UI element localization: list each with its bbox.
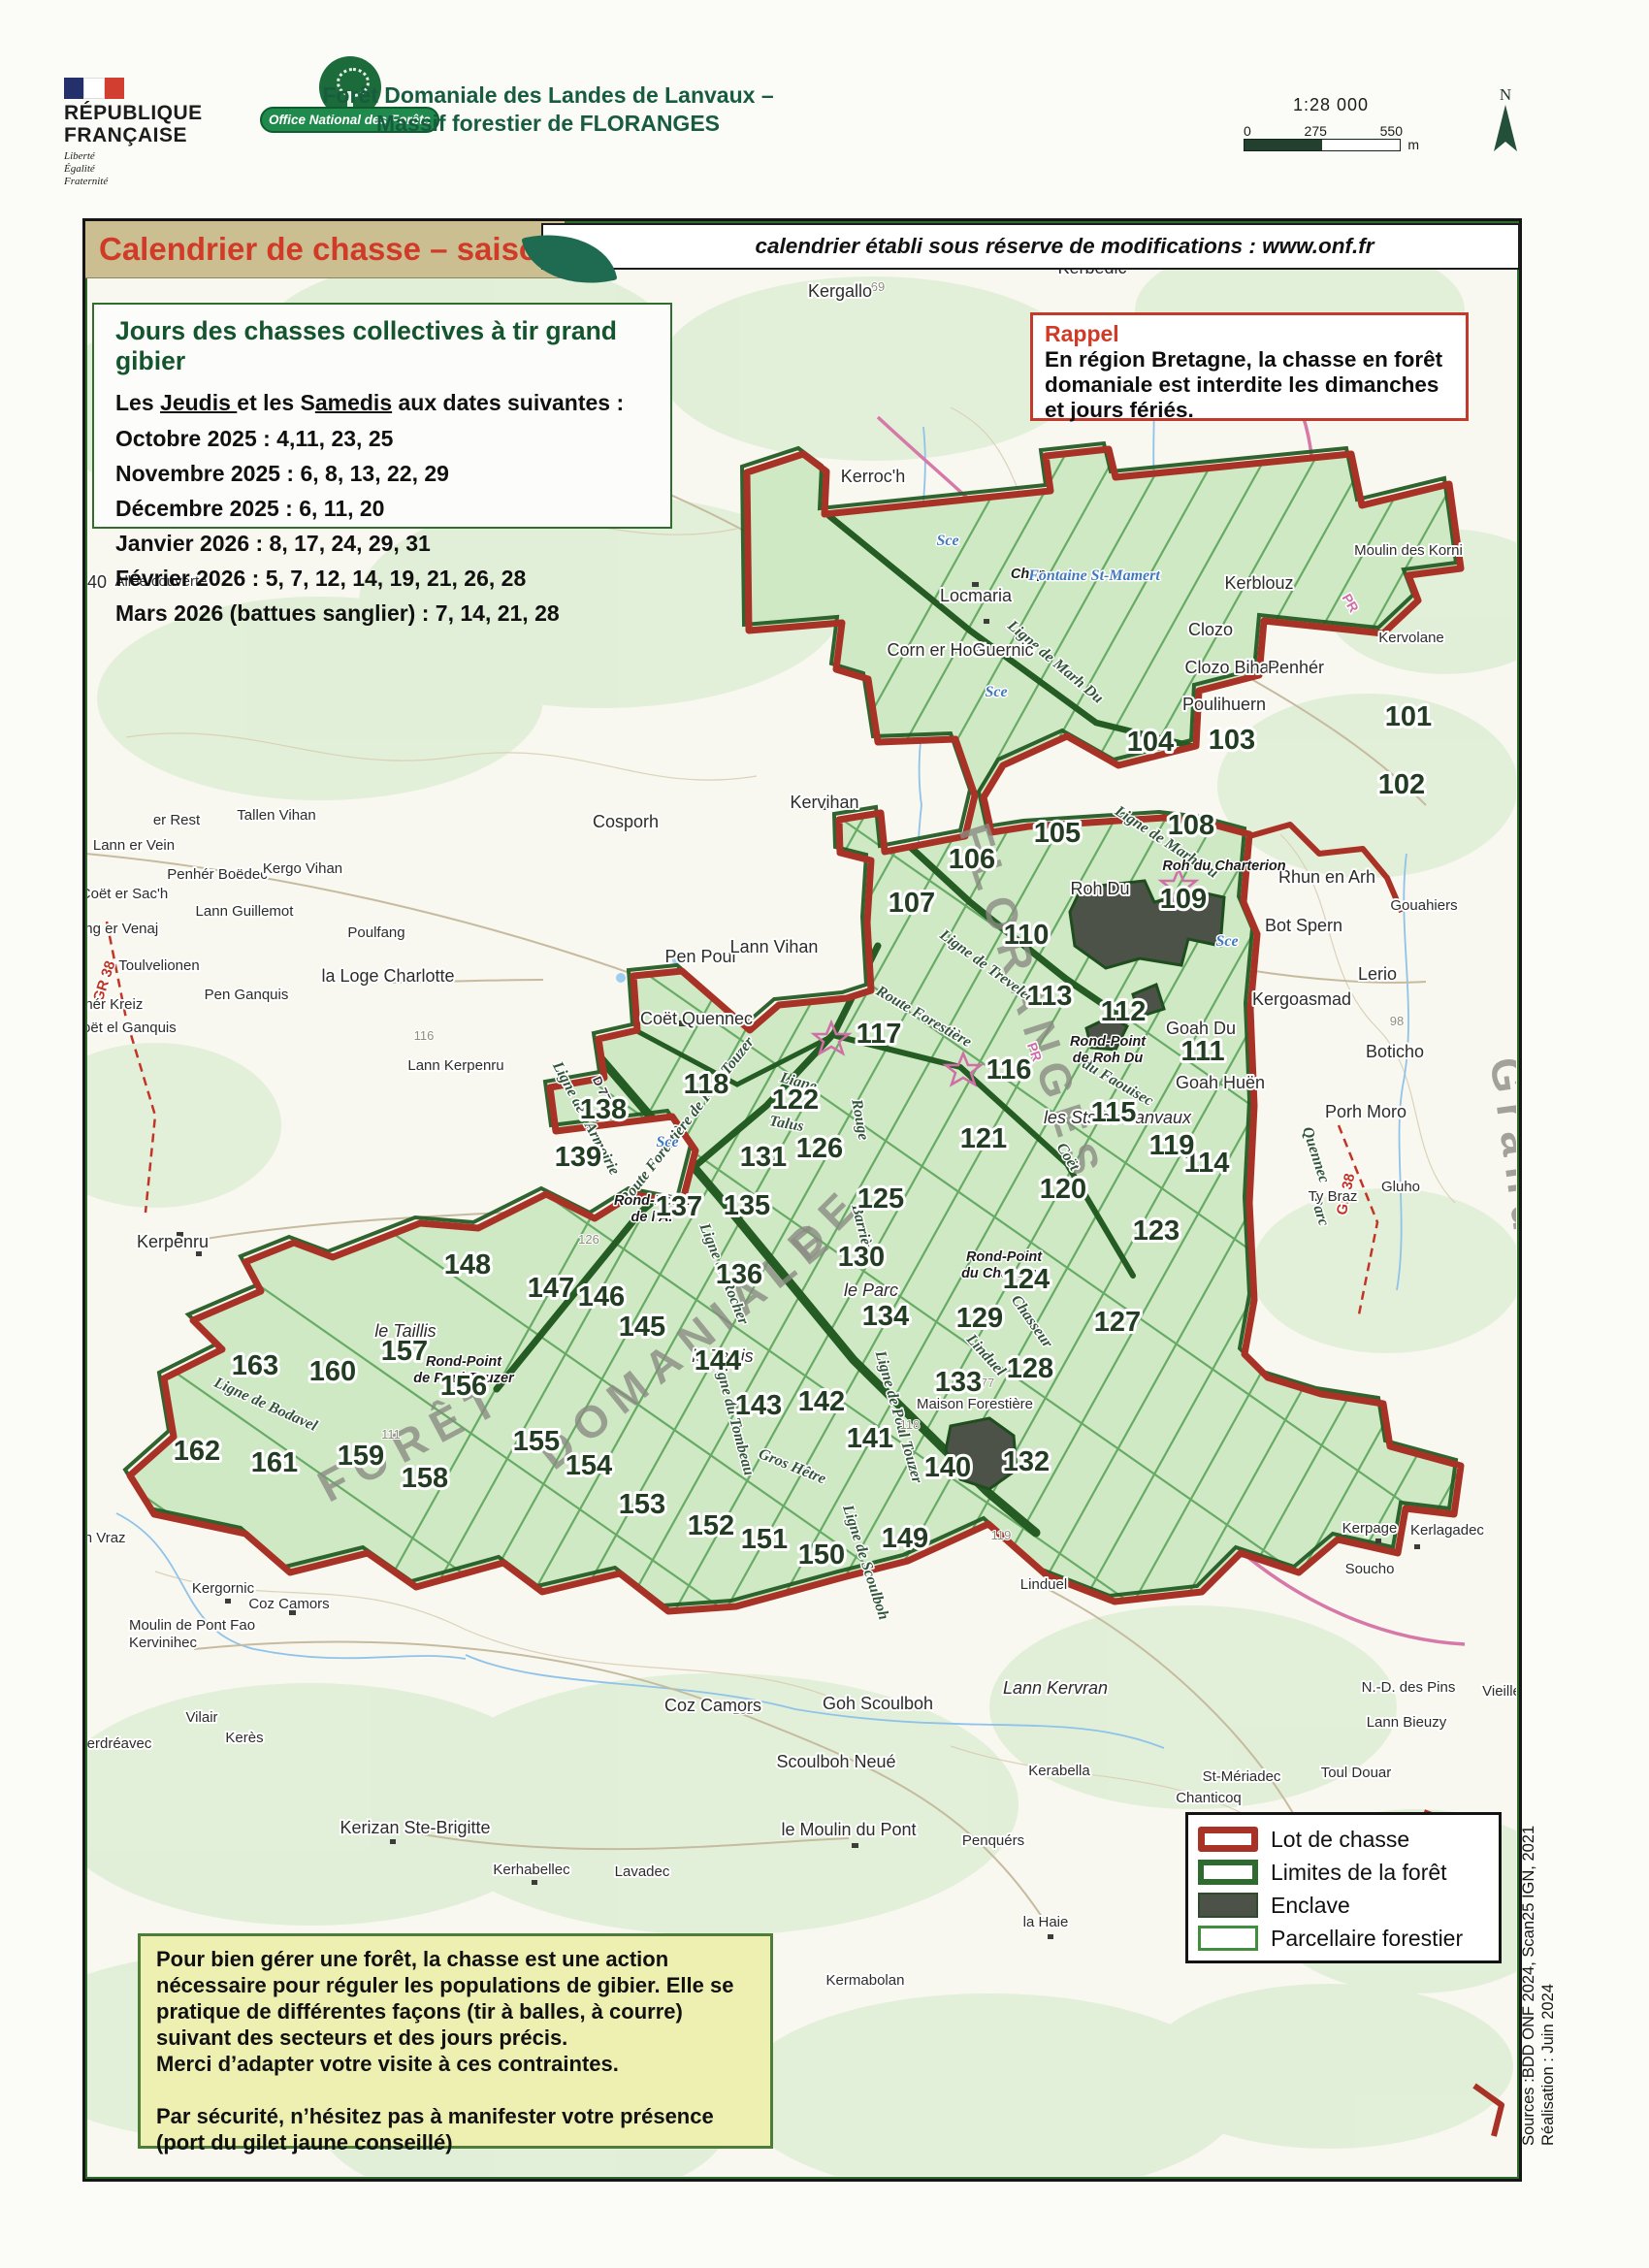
parcel-label-126: 126	[796, 1133, 843, 1164]
parcel-label-144: 144	[695, 1345, 741, 1377]
rappel-title: Rappel	[1045, 321, 1454, 347]
place-label: Kerizan Ste-Brigitte	[339, 1818, 490, 1837]
parcel-label-150: 150	[798, 1539, 845, 1571]
parcel-label-110: 110	[1004, 920, 1050, 951]
schedule-line-5: Mars 2026 (battues sanglier) : 7, 14, 21…	[115, 600, 670, 627]
place-label: le Moulin du Pont	[781, 1820, 916, 1839]
elevation-label: 118	[900, 1417, 921, 1432]
parcel-label-116: 116	[986, 1054, 1032, 1085]
place-label: Clozo	[1188, 620, 1233, 639]
parcel-label-162: 162	[174, 1436, 220, 1467]
place-label: Penhér Boëdec	[167, 866, 268, 883]
place-label: N.-D. des Pins	[1362, 1679, 1456, 1696]
parcel-label-148: 148	[444, 1249, 491, 1280]
parcel-label-133: 133	[935, 1367, 982, 1398]
place-label: Coët Quennec	[640, 1009, 753, 1028]
place-label: Kergornic	[192, 1580, 255, 1597]
place-label: Sce	[656, 1134, 678, 1150]
legend-label: Lot de chasse	[1271, 1827, 1409, 1853]
scale-bar: m	[1244, 139, 1401, 151]
place-label: de Roh Du	[1073, 1051, 1144, 1066]
parcel-label-103: 103	[1209, 725, 1255, 756]
parcel-label-135: 135	[724, 1190, 770, 1221]
legend-label: Enclave	[1271, 1893, 1350, 1919]
place-label: Kerblouz	[1224, 573, 1293, 593]
place-label: Rhun en Arh	[1278, 867, 1375, 887]
republique-francaise-logo: RÉPUBLIQUE FRANÇAISE Liberté Égalité Fra…	[64, 78, 248, 188]
place-label: Kerhabellec	[493, 1862, 570, 1878]
place-label: Penhér	[1268, 658, 1324, 677]
place-label: Bot Spern	[1265, 916, 1342, 935]
french-flag-icon	[64, 78, 124, 99]
place-label: Kermabolan	[826, 1972, 905, 1989]
parcel-label-125: 125	[857, 1183, 904, 1215]
legend-swatch-enclave	[1198, 1893, 1258, 1918]
place-label: Clozo Bihan	[1184, 658, 1278, 677]
legend-label: Limites de la forêt	[1271, 1860, 1447, 1886]
parcel-label-160: 160	[309, 1356, 356, 1387]
sources-line1: Sources :BDD ONF 2024, Scan25 IGN, 2021	[1519, 1738, 1538, 2146]
place-label: Kerpage	[1342, 1520, 1398, 1537]
legend-item-limits: Limites de la forêt	[1198, 1856, 1489, 1889]
legend-swatch-lot	[1198, 1827, 1258, 1852]
hunting-schedule-box: Jours des chasses collectives à tir gran…	[92, 303, 672, 529]
rf-name-line2: FRANÇAISE	[64, 124, 187, 146]
parcel-label-151: 151	[741, 1524, 788, 1555]
sources-note: Sources :BDD ONF 2024, Scan25 IGN, 2021 …	[1519, 1738, 1558, 2146]
rf-motto2: Égalité	[64, 163, 95, 175]
parcel-label-124: 124	[1003, 1264, 1050, 1295]
place-label: Kerdréavec	[85, 1735, 152, 1752]
parcel-label-156: 156	[440, 1371, 487, 1402]
elevation-label: 98	[1390, 1014, 1404, 1028]
place-label: eh Vraz	[85, 1530, 126, 1546]
rf-motto3: Fraternité	[64, 176, 108, 187]
parcel-label-105: 105	[1034, 818, 1081, 849]
elevation-label: 77	[981, 1376, 994, 1390]
place-label: Moulin de Pont Fao	[129, 1617, 255, 1634]
parcel-label-130: 130	[838, 1242, 885, 1273]
place-label: Locmaria	[940, 586, 1013, 605]
note-strip: calendrier établi sous réserve de modifi…	[541, 223, 1520, 270]
place-label: Lavadec	[615, 1863, 670, 1880]
place-label: le Parc	[844, 1280, 898, 1300]
parcel-label-104: 104	[1127, 727, 1174, 758]
schedule-line-1: Novembre 2025 : 6, 8, 13, 22, 29	[115, 461, 670, 487]
north-label: N	[1488, 85, 1523, 105]
place-label: Gluho	[1381, 1179, 1420, 1195]
parcel-label-113: 113	[1027, 981, 1073, 1012]
place-label: Gouahiers	[1390, 897, 1457, 914]
place-label: Roh du Charterion	[1162, 859, 1285, 874]
place-label: Goah Huën	[1176, 1073, 1265, 1092]
parcel-label-155: 155	[513, 1426, 560, 1457]
place-label: Penquérs	[962, 1832, 1024, 1849]
place-label: Kerlagadec	[1410, 1522, 1484, 1539]
place-label: Toul Douar	[1321, 1765, 1392, 1781]
place-label: Coët el Ganquis	[85, 1020, 177, 1036]
place-label: Kervolane	[1378, 630, 1444, 646]
place-label: Rond-Point	[426, 1354, 502, 1370]
parcel-label-136: 136	[716, 1259, 762, 1290]
north-arrow-icon	[1491, 105, 1520, 155]
parcel-label-111: 111	[1180, 1036, 1224, 1067]
parcel-label-152: 152	[688, 1510, 734, 1541]
scale-tick-0: 0	[1244, 123, 1251, 139]
parcel-label-149: 149	[882, 1523, 928, 1554]
place-label: Kerroc'h	[841, 467, 905, 486]
place-label: Maison Forestière	[917, 1396, 1033, 1412]
parcel-label-141: 141	[847, 1423, 893, 1454]
schedule-line-0: Octobre 2025 : 4,11, 23, 25	[115, 426, 670, 452]
scale-ratio: 1:28 000	[1244, 95, 1418, 115]
parcel-label-112: 112	[1101, 996, 1147, 1027]
legend-item-lot: Lot de chasse	[1198, 1823, 1489, 1856]
schedule-line-4: Février 2026 : 5, 7, 12, 14, 19, 21, 26,…	[115, 566, 670, 592]
place-label: Cosporh	[593, 812, 659, 831]
parcel-label-129: 129	[956, 1303, 1003, 1334]
parcel-label-102: 102	[1378, 769, 1425, 800]
schedule-line-3: Janvier 2026 : 8, 17, 24, 29, 31	[115, 531, 670, 557]
place-label: Ty Braz	[1309, 1188, 1358, 1205]
rappel-box: Rappel En région Bretagne, la chasse en …	[1030, 312, 1469, 421]
place-label: Boticho	[1366, 1042, 1424, 1061]
schedule-line-2: Décembre 2025 : 6, 11, 20	[115, 496, 670, 522]
place-label: Porh Moro	[1325, 1102, 1406, 1121]
parcel-label-128: 128	[1007, 1353, 1053, 1384]
parcel-label-127: 127	[1094, 1307, 1141, 1338]
elevation-label: 116	[414, 1028, 435, 1043]
place-label: Kerès	[225, 1730, 263, 1746]
schedule-lines: Octobre 2025 : 4,11, 23, 25Novembre 2025…	[115, 426, 670, 627]
place-label: la Haie	[1023, 1914, 1069, 1930]
elevation-label: 111	[381, 1427, 401, 1442]
parcel-label-146: 146	[578, 1281, 625, 1312]
note-text: calendrier établi sous réserve de modifi…	[687, 234, 1374, 259]
parcel-label-159: 159	[338, 1441, 384, 1472]
parcel-label-139: 139	[555, 1142, 601, 1173]
parcel-label-143: 143	[735, 1390, 782, 1421]
info-para3: Par sécurité, n’hésitez pas à manifester…	[156, 2103, 755, 2155]
parcel-label-107: 107	[889, 888, 935, 919]
place-label: Sce	[985, 684, 1007, 700]
place-label: Lann er Vein	[93, 837, 175, 854]
place-label: Rond-Point	[966, 1249, 1043, 1265]
title-line2: Massif forestier de FLORANGES	[376, 111, 720, 136]
place-label: Kergallo	[808, 281, 872, 301]
place-label: Kervihan	[790, 793, 858, 812]
scale-tick-275: 275	[1305, 123, 1327, 139]
parcel-label-119: 119	[1149, 1130, 1195, 1161]
parcel-label-147: 147	[528, 1273, 574, 1304]
place-label: Kerpenru	[137, 1232, 209, 1251]
parcel-label-132: 132	[1003, 1446, 1050, 1477]
place-label: la Loge Charlotte	[321, 966, 454, 986]
schedule-title: Jours des chasses collectives à tir gran…	[115, 316, 670, 376]
place-label: Kerabella	[1028, 1763, 1090, 1779]
north-arrow: N	[1488, 85, 1523, 160]
parcel-label-122: 122	[772, 1085, 819, 1116]
parcel-label-163: 163	[232, 1350, 278, 1381]
legend-swatch-limits	[1198, 1860, 1258, 1885]
place-label: er Rest	[153, 812, 201, 828]
page-title: Forêt Domaniale des Landes de Lanvaux – …	[320, 81, 776, 138]
parcel-label-140: 140	[924, 1452, 971, 1483]
scale-tick-550: 550	[1380, 123, 1403, 139]
place-label: Pen Ganquis	[205, 987, 289, 1003]
elevation-label: 69	[871, 279, 885, 294]
parcel-label-161: 161	[251, 1447, 298, 1478]
parcel-label-115: 115	[1091, 1097, 1137, 1128]
place-label: Poulfang	[347, 924, 404, 941]
place-label: Kergo Vihan	[263, 860, 342, 877]
legend-item-enclave: Enclave	[1198, 1889, 1489, 1922]
parcel-label-134: 134	[862, 1301, 909, 1332]
parcel-label-154: 154	[566, 1450, 612, 1481]
legend-label: Parcellaire forestier	[1271, 1926, 1463, 1952]
sources-line2: Réalisation : Juin 2024	[1538, 1738, 1558, 2146]
legend-swatch-parcel	[1198, 1926, 1258, 1951]
legend-item-parcel: Parcellaire forestier	[1198, 1922, 1489, 1955]
place-label: Poulihuern	[1182, 695, 1266, 714]
parcel-label-142: 142	[798, 1386, 845, 1417]
place-label: Coët er Sac'h	[85, 886, 168, 902]
parcel-label-137: 137	[656, 1191, 702, 1222]
map-legend: Lot de chasseLimites de la forêtEnclaveP…	[1185, 1812, 1502, 1963]
parcel-label-101: 101	[1385, 701, 1432, 732]
elevation-label: 126	[578, 1232, 599, 1247]
parcel-label-121: 121	[960, 1123, 1007, 1154]
place-label: Chanticoq	[1176, 1790, 1242, 1806]
place-label: Scoulboh Neué	[776, 1752, 895, 1771]
place-label: Goh Scoulboh	[823, 1694, 933, 1713]
place-label: Penhér Kreiz	[85, 996, 143, 1013]
elevation-label: 119	[991, 1528, 1012, 1542]
info-box: Pour bien gérer une forêt, la chasse est…	[138, 1933, 773, 2149]
parcel-label-153: 153	[619, 1489, 665, 1520]
place-label: Lann Kervran	[1003, 1678, 1108, 1698]
schedule-subtitle: Les Jeudis et les Samedis aux dates suiv…	[115, 390, 670, 416]
place-label: Kervinihec	[129, 1635, 198, 1651]
rf-motto1: Liberté	[64, 150, 95, 162]
place-label: Coz Camors	[248, 1596, 329, 1612]
place-label: Goah Du	[1166, 1019, 1236, 1038]
parcel-label-131: 131	[740, 1142, 787, 1173]
title-line1: Forêt Domaniale des Landes de Lanvaux –	[322, 82, 773, 108]
info-para1: Pour bien gérer une forêt, la chasse est…	[156, 1946, 755, 2051]
place-label: Soucho	[1345, 1561, 1395, 1577]
parcel-label-109: 109	[1160, 884, 1207, 915]
document-page: RÉPUBLIQUE FRANÇAISE Liberté Égalité Fra…	[0, 0, 1649, 2268]
parcel-label-157: 157	[381, 1336, 428, 1367]
place-label: Lerio	[1358, 964, 1397, 984]
place-label: Lann Guillemot	[196, 903, 295, 920]
place-label: Roh Du	[1070, 879, 1129, 898]
place-label: Lann Kerpenru	[407, 1057, 503, 1074]
place-label: Stang er Venaj	[85, 921, 158, 937]
rf-name-line1: RÉPUBLIQUE	[64, 102, 203, 124]
rappel-body: En région Bretagne, la chasse en forêt d…	[1045, 347, 1454, 423]
map-scale: 1:28 000 0 275 550 m	[1244, 95, 1418, 151]
place-label: Toulvelionen	[118, 957, 199, 974]
place-label: Coz Camors	[664, 1696, 761, 1715]
place-label: Pen Poul	[664, 947, 735, 966]
place-label: Guernic	[972, 640, 1033, 660]
place-label: Sce	[1215, 933, 1238, 950]
parcel-label-118: 118	[684, 1069, 729, 1100]
place-label: Tallen Vihan	[237, 807, 315, 824]
place-label: St-Mériadec	[1203, 1768, 1281, 1785]
place-label: 40	[87, 572, 107, 592]
place-label: Linduel	[1020, 1576, 1067, 1593]
parcel-label-138: 138	[580, 1094, 627, 1125]
parcel-label-117: 117	[857, 1019, 902, 1050]
info-para2: Merci d’adapter votre visite à ces contr…	[156, 2051, 755, 2077]
scale-unit: m	[1407, 137, 1419, 153]
place-label: Sce	[936, 533, 958, 549]
parcel-label-106: 106	[949, 844, 995, 875]
parcel-label-145: 145	[619, 1312, 665, 1343]
place-label: Rond-Point	[1070, 1034, 1147, 1050]
parcel-label-120: 120	[1040, 1174, 1086, 1205]
place-label: Lann Vihan	[730, 937, 819, 956]
place-label: Lann Bieuzy	[1367, 1714, 1447, 1731]
parcel-label-123: 123	[1133, 1215, 1180, 1247]
parcel-label-158: 158	[402, 1463, 448, 1494]
place-label: Vilair	[185, 1709, 217, 1726]
banner-calendrier: Calendrier de chasse – saison 2025-2026	[85, 221, 565, 278]
place-label: Fontaine St-Mamert	[1027, 567, 1160, 584]
parcel-label-108: 108	[1168, 810, 1214, 841]
place-label: Kergoasmad	[1252, 989, 1351, 1009]
place-label: Vieille	[1482, 1683, 1516, 1700]
place-label: Moulin des Korni	[1354, 542, 1463, 559]
